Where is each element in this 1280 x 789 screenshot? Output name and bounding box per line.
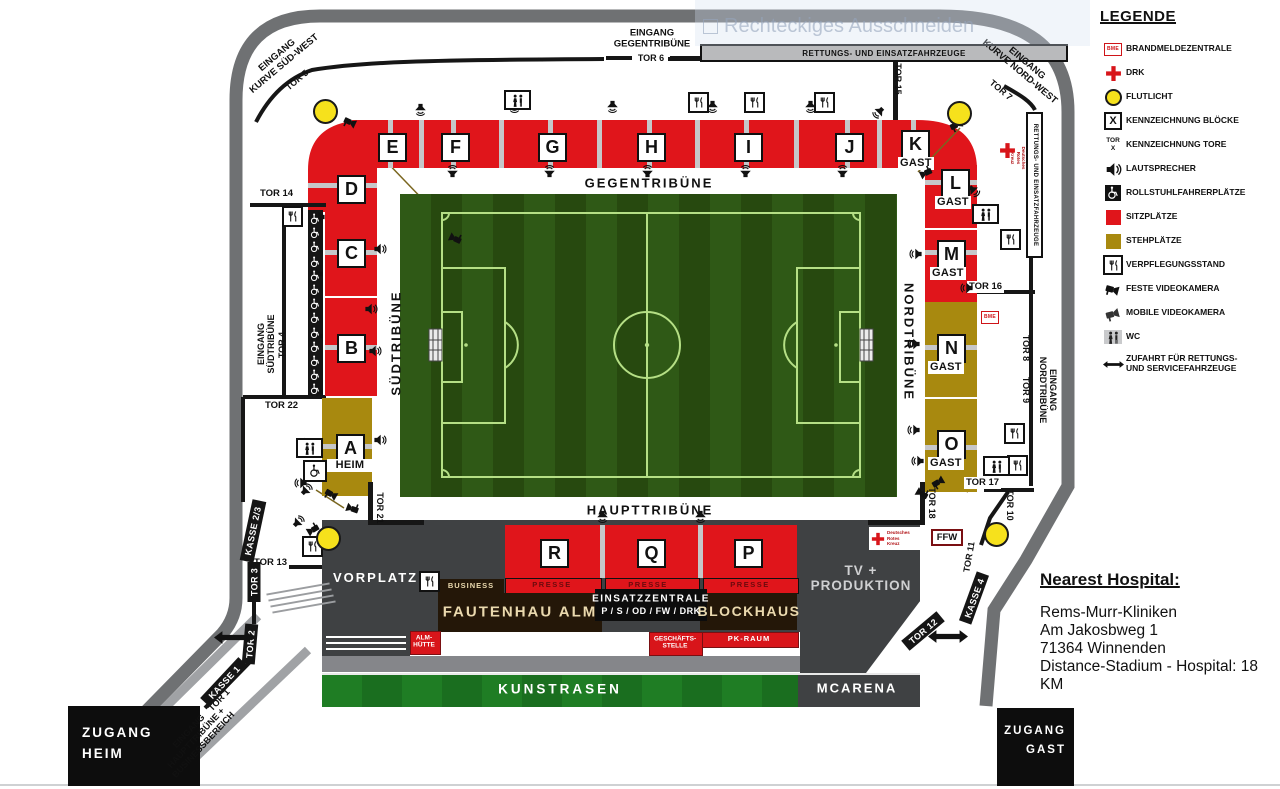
red-cross-icon (871, 532, 885, 546)
gate18-fence (920, 482, 925, 524)
haupttribuene-label: HAUPTTRIBÜNE (587, 504, 714, 519)
legend-row: BME BRANDMELDEZENTRALE (1100, 37, 1278, 61)
legend-row: X KENNZEICHNUNG BLÖCKE (1100, 109, 1278, 133)
legend-label: FLUTLICHT (1126, 92, 1173, 102)
gegentribuene-label: GEGENTRIBÜNE (585, 177, 714, 192)
legend-label: WC (1126, 332, 1140, 342)
nordtribuene-label: NORDTRIBÜNE (901, 283, 916, 401)
blockhaus-label: BLOCKHAUS (698, 604, 801, 620)
bme-icon: BME (981, 311, 999, 324)
tv-produktion-label: TV + PRODUKTION (811, 563, 912, 593)
playing-field (400, 194, 897, 497)
wheelchair-icon (1100, 185, 1126, 201)
floodlight-icon (947, 101, 972, 126)
fautenhau-alm-label: FAUTENHAU ALM (443, 605, 598, 622)
legend: LEGENDE BME BRANDMELDEZENTRALE DRK FLUTL… (1100, 8, 1278, 379)
gate16-label: TOR 16 (967, 281, 1004, 293)
drk-badge: Deutsches Rotes Kreuz (869, 527, 927, 550)
gate15-label: TOR 15 (893, 63, 903, 94)
vorplatz-label: VORPLATZ (333, 571, 418, 586)
entrance-suedtribuene-label: EINGANG SÜDTRIBÜNE (256, 314, 276, 373)
legend-label: VERPFLEGUNGSSTAND (1126, 260, 1225, 270)
watermark-text: Rechteckiges Ausschneiden (724, 15, 974, 38)
block-l-gast-label: GAST (935, 196, 971, 209)
food-stand-icon (1100, 255, 1126, 275)
legend-row: SITZPLÄTZE (1100, 205, 1278, 229)
legend-label: STEHPLÄTZE (1126, 236, 1182, 246)
gate4-label: TOR 4 (277, 332, 287, 358)
gate22-label: TOR 22 (263, 400, 300, 412)
legend-label: MOBILE VIDEOKAMERA (1126, 308, 1225, 318)
seat-square-icon (1100, 210, 1126, 225)
block-j-marker: J (835, 133, 864, 162)
block-n-gast-label: GAST (928, 361, 964, 374)
ffw-label: FFW (937, 532, 958, 543)
gate10-label: TOR 10 (1005, 489, 1015, 520)
hospital-line-3: 71364 Winnenden (1040, 640, 1166, 658)
legend-title: LEGENDE (1100, 8, 1278, 25)
fixed-camera-icon (1100, 281, 1126, 298)
gate21-label: TOR 21 (375, 492, 385, 523)
wheelchair-platform-strip (308, 210, 323, 396)
gate18-fence (868, 520, 925, 525)
gate6-label: TOR 6 (638, 53, 664, 63)
emergency-bar-label: RETTUNGS- UND EINSATZFAHRZEUGE (802, 49, 965, 58)
zugang-gast-box: ZUGANG GAST (997, 708, 1074, 786)
entrance-gegentribuene-label: EINGANG GEGENTRIBÜNE (614, 28, 691, 49)
block-h-marker: H (637, 133, 666, 162)
red-cross-icon (1100, 65, 1126, 82)
presse-label-r: PRESSE (532, 581, 571, 589)
gate18-label: TOR 18 (927, 487, 937, 518)
hospital-line-4: Distance-Stadium - Hospital: 18 KM (1040, 658, 1280, 694)
gate3-bar: TOR 3 (248, 562, 261, 602)
floodlight-icon (1100, 89, 1126, 106)
geschaeftsstelle-label: GESCHÄFTS- STELLE (654, 636, 696, 651)
legend-label: BRANDMELDEZENTRALE (1126, 44, 1232, 54)
emergency-bar-right-label: RETTUNGS- UND EINSATZFAHRZEUGE (1032, 124, 1038, 247)
emergency-vehicles-bar-right: RETTUNGS- UND EINSATZFAHRZEUGE (1026, 112, 1043, 258)
legend-row: TOR X KENNZEICHNUNG TORE (1100, 133, 1278, 157)
legend-label: LAUTSPRECHER (1126, 164, 1196, 174)
legend-label: KENNZEICHNUNG BLÖCKE (1126, 116, 1239, 126)
red-cross-icon (999, 142, 1016, 164)
block-b-marker: B (337, 334, 366, 363)
pk-raum-label: PK-RAUM (728, 635, 770, 643)
floodlight-icon (984, 522, 1009, 547)
legend-label: SITZPLÄTZE (1126, 212, 1177, 222)
block-m-gast-label: GAST (930, 267, 966, 280)
ramp-line (326, 636, 406, 638)
snip-icon (703, 19, 718, 34)
block-marker-icon: X (1100, 112, 1126, 130)
block-o-marker: O (937, 430, 966, 459)
legend-row: WC (1100, 325, 1278, 349)
legend-row: STEHPLÄTZE (1100, 229, 1278, 253)
gate17-label: TOR 17 (964, 477, 1001, 489)
block-m-marker: M (937, 240, 966, 269)
mobile-camera-icon (1100, 305, 1126, 322)
legend-label: KENNZEICHNUNG TORE (1126, 140, 1226, 150)
gate6-dash (606, 56, 632, 60)
standing-square-icon (1100, 234, 1126, 249)
suedtribuene-label: SÜDTRIBÜNE (390, 290, 405, 395)
alm-huette-label: ALM- HÜTTE (413, 635, 435, 650)
ramp-line (326, 642, 406, 644)
legend-label: ROLLSTUHLFAHRERPLÄTZE (1126, 188, 1245, 198)
speaker-icon (1100, 161, 1126, 178)
block-d-marker: D (337, 175, 366, 204)
ffw-badge: FFW (931, 529, 963, 546)
block-a-heim-label: HEIM (327, 459, 373, 472)
gate14-label: TOR 14 (258, 188, 295, 200)
legend-label: FESTE VIDEOKAMERA (1126, 284, 1220, 294)
pitch-markings (400, 194, 897, 497)
legend-row: MOBILE VIDEOKAMERA (1100, 301, 1278, 325)
bme-icon: BME (1104, 43, 1122, 56)
legend-row: ROLLSTUHLFAHRERPLÄTZE (1100, 181, 1278, 205)
access-arrow-icon (1100, 360, 1126, 369)
legend-row: DRK (1100, 61, 1278, 85)
block-p-marker: P (734, 539, 763, 568)
legend-row: VERPFLEGUNGSSTAND (1100, 253, 1278, 277)
block-g-marker: G (538, 133, 567, 162)
block-l-marker: L (941, 169, 970, 198)
block-r-marker: R (540, 539, 569, 568)
block-q-marker: Q (637, 539, 666, 568)
suedtribuene-stand (325, 210, 377, 396)
zugang-gast-label: ZUGANG GAST (997, 708, 1074, 760)
legend-row: FLUTLICHT (1100, 85, 1278, 109)
entrance-nordtribuene-label: EINGANG NORDTRIBÜNE (1038, 357, 1058, 424)
drk-badge-text: Deutsches Rotes Kreuz (887, 530, 910, 547)
business-label: BUSINESS (448, 582, 494, 590)
block-i-marker: I (734, 133, 763, 162)
floodlight-icon (316, 526, 341, 551)
stadium-map: RETTUNGS- UND EINSATZFAHRZEUGE RETTUNGS-… (0, 0, 1280, 789)
legend-row: LAUTSPRECHER (1100, 157, 1278, 181)
block-k-marker: K (901, 130, 930, 159)
block-o-gast-label: GAST (928, 457, 964, 470)
presse-label-p: PRESSE (730, 581, 769, 589)
mcarena-label: MCARENA (817, 682, 897, 697)
wc-icon (1100, 330, 1126, 344)
gate-marker-icon: TOR X (1100, 137, 1126, 153)
hospital-title: Nearest Hospital: (1040, 570, 1180, 590)
legend-label: ZUFAHRT FÜR RETTUNGS- UND SERVICEFAHRZEU… (1126, 354, 1237, 374)
block-e-marker: E (378, 133, 407, 162)
service-road (322, 656, 800, 672)
ramp-line (326, 648, 406, 650)
hospital-line-2: Am Jakosbweg 1 (1040, 622, 1158, 640)
einsatzzentrale-codes-label: P / S / OD / FW / DRK (601, 606, 700, 616)
kunstrasen-label: KUNSTRASEN (498, 681, 622, 696)
gate6-dash (670, 56, 700, 60)
gegentribuene-stand (352, 120, 905, 168)
gate21-fence (368, 482, 373, 524)
floodlight-icon (313, 99, 338, 124)
presse-label-q: PRESSE (628, 581, 667, 589)
legend-row: FESTE VIDEOKAMERA (1100, 277, 1278, 301)
einsatzzentrale-label: EINSATZZENTRALE (592, 593, 710, 604)
legend-label: DRK (1126, 68, 1144, 78)
block-n-marker: N (937, 334, 966, 363)
block-c-marker: C (337, 239, 366, 268)
block-k-gast-label: GAST (898, 157, 934, 170)
gate9-label: TOR 9 (1021, 377, 1031, 403)
hospital-line-1: Rems-Murr-Kliniken (1040, 604, 1177, 622)
block-f-marker: F (441, 133, 470, 162)
legend-row: ZUFAHRT FÜR RETTUNGS- UND SERVICEFAHRZEU… (1100, 349, 1278, 379)
gate8-label: TOR 8 (1021, 335, 1031, 361)
